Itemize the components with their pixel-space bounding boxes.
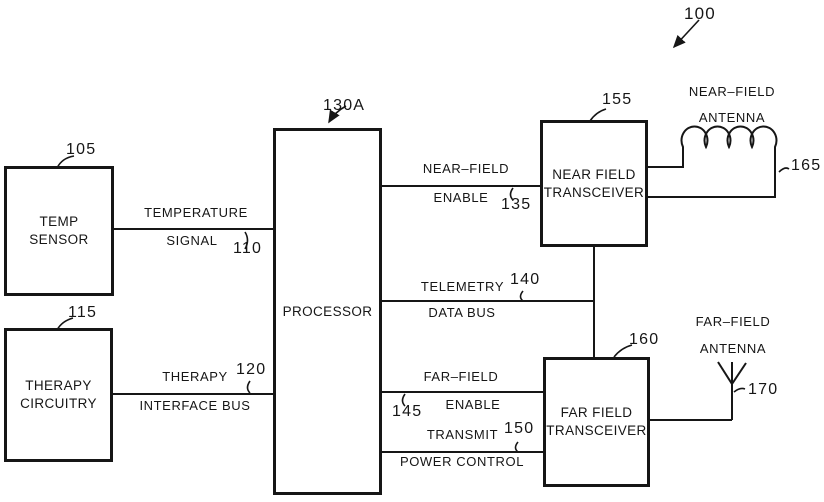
leader-140 xyxy=(521,291,524,301)
tx-power-label-line2: POWER CONTROL xyxy=(396,454,528,469)
nf-antenna-label-line1: NEAR–FIELD xyxy=(682,84,782,99)
leader-120 xyxy=(248,381,251,393)
temperature-signal-label-line2: SIGNAL xyxy=(152,233,232,248)
temperature-signal-label-line1: TEMPERATURE xyxy=(135,205,257,220)
telemetry-label-line2: DATA BUS xyxy=(418,305,506,320)
far-field-antenna-left-arm xyxy=(718,362,732,384)
temp-sensor-label-line1: TEMP xyxy=(39,213,78,231)
ff-antenna-label-line1: FAR–FIELD xyxy=(687,314,779,329)
temp-sensor-box: TEMP SENSOR xyxy=(4,166,114,296)
therapy-bus-label-line1: THERAPY xyxy=(155,369,235,384)
far-field-transceiver-box: FAR FIELD TRANSCEIVER xyxy=(543,357,650,487)
ff-transceiver-label-line2: TRANSCEIVER xyxy=(546,422,646,440)
leader-170 xyxy=(734,388,745,392)
ff-antenna-label-line2: ANTENNA xyxy=(687,341,779,356)
ref-145: 145 xyxy=(392,403,422,421)
ref-120: 120 xyxy=(236,361,266,379)
near-field-antenna-coil xyxy=(648,126,777,197)
nf-transceiver-label-line1: NEAR FIELD xyxy=(552,166,636,184)
nf-antenna-label-line2: ANTENNA xyxy=(684,110,780,125)
leader-165 xyxy=(779,168,789,172)
ref-105: 105 xyxy=(66,141,96,159)
therapy-bus-label-line2: INTERFACE BUS xyxy=(130,398,260,413)
ref-160: 160 xyxy=(629,331,659,349)
therapy-label-line1: THERAPY xyxy=(25,377,92,395)
leader-150 xyxy=(516,442,519,452)
telemetry-label-line1: TELEMETRY xyxy=(415,279,510,294)
ref-135: 135 xyxy=(501,196,531,214)
ref-115: 115 xyxy=(68,304,97,322)
ref-110: 110 xyxy=(233,240,262,258)
figure-ref-arrow xyxy=(674,20,699,47)
nf-enable-label-line1: NEAR–FIELD xyxy=(412,161,520,176)
ref-170: 170 xyxy=(748,381,778,399)
figure-ref-100: 100 xyxy=(684,4,716,24)
ff-enable-label-line2: ENABLE xyxy=(433,397,513,412)
temp-sensor-label-line2: SENSOR xyxy=(29,231,88,249)
ff-enable-label-line1: FAR–FIELD xyxy=(413,369,509,384)
ff-transceiver-label-line1: FAR FIELD xyxy=(561,404,633,422)
processor-label: PROCESSOR xyxy=(283,303,373,321)
ref-140: 140 xyxy=(510,271,540,289)
ref-150: 150 xyxy=(504,420,534,438)
therapy-circuitry-box: THERAPY CIRCUITRY xyxy=(4,328,113,462)
near-field-transceiver-box: NEAR FIELD TRANSCEIVER xyxy=(540,120,648,247)
ref-155: 155 xyxy=(602,91,632,109)
therapy-label-line2: CIRCUITRY xyxy=(20,395,97,413)
patent-block-diagram: TEMP SENSOR THERAPY CIRCUITRY PROCESSOR … xyxy=(0,0,824,502)
ref-130a: 130A xyxy=(323,97,365,115)
diagram-wires xyxy=(0,0,824,502)
nf-transceiver-label-line2: TRANSCEIVER xyxy=(544,184,644,202)
processor-box: PROCESSOR xyxy=(273,128,382,495)
far-field-antenna-right-arm xyxy=(732,363,746,384)
ref-165: 165 xyxy=(791,157,821,175)
nf-enable-label-line2: ENABLE xyxy=(421,190,501,205)
tx-power-label-line1: TRANSMIT xyxy=(425,427,500,442)
